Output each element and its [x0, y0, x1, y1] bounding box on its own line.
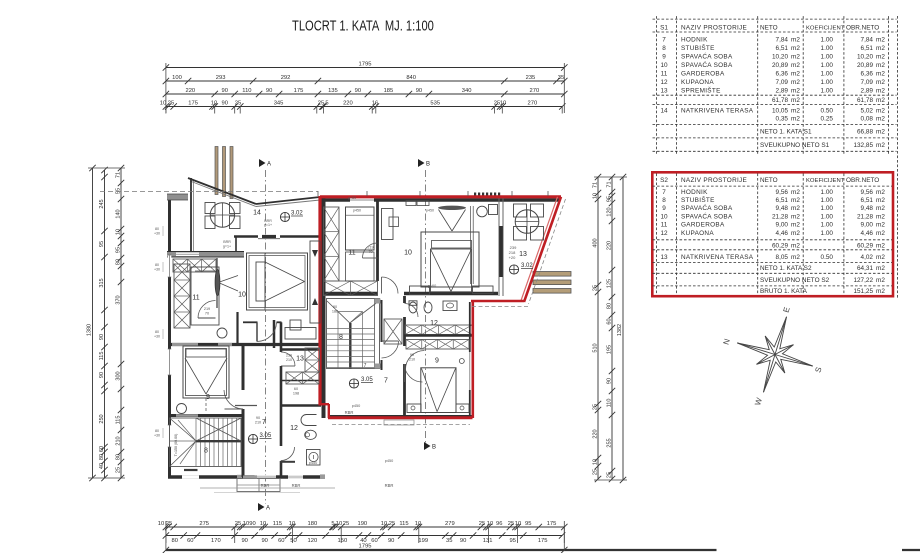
- svg-text:+30: +30: [154, 232, 160, 236]
- svg-text:110: 110: [242, 88, 251, 94]
- svg-text:25: 25: [318, 101, 324, 107]
- svg-text:m2: m2: [876, 213, 885, 220]
- svg-text:10: 10: [116, 229, 122, 235]
- svg-text:7: 7: [384, 378, 388, 385]
- svg-text:1.00: 1.00: [821, 205, 834, 212]
- svg-text:p450: p450: [353, 209, 361, 213]
- svg-text:SVEUKUPNO NETO S1: SVEUKUPNO NETO S1: [760, 142, 830, 149]
- svg-text:25: 25: [116, 467, 122, 473]
- svg-text:90: 90: [266, 88, 272, 94]
- svg-text:0.50: 0.50: [821, 254, 834, 261]
- svg-text:8: 8: [204, 448, 208, 455]
- svg-text:12: 12: [290, 425, 298, 432]
- svg-text:95: 95: [607, 196, 613, 202]
- svg-text:60: 60: [99, 446, 105, 452]
- svg-text:10: 10: [660, 213, 668, 220]
- svg-text:m2: m2: [876, 116, 885, 123]
- svg-text:SVEUKUPNO NETO S2: SVEUKUPNO NETO S2: [760, 277, 830, 284]
- svg-text:GARDEROBA: GARDEROBA: [681, 70, 725, 77]
- svg-text:90: 90: [261, 538, 267, 544]
- svg-text:OBR.NETO: OBR.NETO: [846, 25, 879, 32]
- svg-text:7: 7: [364, 363, 367, 369]
- svg-text:127,22: 127,22: [853, 277, 873, 284]
- svg-text:m2: m2: [876, 142, 885, 149]
- svg-text:120: 120: [308, 538, 318, 544]
- svg-text:250: 250: [99, 414, 105, 423]
- svg-text:61,78: 61,78: [772, 97, 788, 104]
- svg-text:m2: m2: [876, 62, 885, 69]
- svg-text:1.00: 1.00: [821, 197, 834, 204]
- svg-text:270: 270: [530, 88, 540, 94]
- svg-text:235: 235: [526, 75, 536, 81]
- svg-text:m2: m2: [791, 116, 800, 123]
- svg-text:60: 60: [187, 538, 193, 544]
- svg-text:RBR: RBR: [292, 483, 301, 488]
- svg-text:m2: m2: [791, 53, 800, 60]
- svg-text:90: 90: [249, 521, 255, 527]
- svg-text:7,84: 7,84: [861, 36, 874, 43]
- svg-text:5,02: 5,02: [861, 107, 874, 114]
- svg-text:SPAVAĆA SOBA: SPAVAĆA SOBA: [681, 51, 733, 60]
- svg-text:292: 292: [281, 75, 291, 81]
- svg-text:10: 10: [660, 62, 668, 69]
- svg-text:198: 198: [293, 392, 299, 396]
- svg-text:210: 210: [116, 436, 122, 445]
- svg-text:0.50: 0.50: [821, 107, 834, 114]
- svg-text:1.00: 1.00: [821, 88, 834, 95]
- svg-text:35: 35: [446, 538, 452, 544]
- svg-text:m2: m2: [876, 128, 885, 135]
- svg-text:T=150 (00.00): T=150 (00.00): [174, 434, 178, 457]
- svg-text:9: 9: [662, 205, 666, 212]
- svg-text:HODNIK: HODNIK: [681, 189, 708, 196]
- svg-text:SPREMIŠTE: SPREMIŠTE: [681, 86, 721, 95]
- svg-text:NATKRIVENA TERASA: NATKRIVENA TERASA: [681, 254, 754, 261]
- svg-text:10: 10: [415, 521, 421, 527]
- svg-text:12: 12: [430, 320, 438, 327]
- svg-text:7: 7: [662, 189, 666, 196]
- svg-text:KUPAONA: KUPAONA: [681, 79, 714, 86]
- svg-text:131: 131: [483, 538, 493, 544]
- svg-text:20,89: 20,89: [772, 62, 788, 69]
- svg-text:10: 10: [158, 521, 164, 527]
- svg-text:m2: m2: [876, 88, 885, 95]
- svg-text:25: 25: [508, 521, 514, 527]
- svg-text:4,46: 4,46: [861, 230, 874, 237]
- svg-text:10: 10: [211, 101, 217, 107]
- svg-text:80: 80: [155, 227, 159, 231]
- svg-text:8,05: 8,05: [776, 254, 789, 261]
- svg-text:N: N: [722, 337, 732, 345]
- svg-text:90: 90: [99, 372, 105, 378]
- svg-text:25: 25: [593, 404, 599, 410]
- svg-text:140: 140: [116, 209, 122, 218]
- svg-text:151,25: 151,25: [853, 288, 873, 295]
- svg-text:125: 125: [607, 279, 613, 288]
- svg-text:m2: m2: [791, 45, 800, 52]
- svg-text:OBR.NETO: OBR.NETO: [846, 177, 879, 184]
- svg-text:6,51: 6,51: [776, 45, 789, 52]
- svg-text:90: 90: [256, 416, 260, 420]
- svg-text:2,89: 2,89: [861, 88, 874, 95]
- svg-text:175: 175: [547, 521, 557, 527]
- svg-text:STUBIŠTE: STUBIŠTE: [681, 195, 715, 204]
- svg-text:0.25: 0.25: [821, 116, 834, 123]
- svg-text:90: 90: [607, 378, 613, 384]
- svg-text:95: 95: [99, 241, 105, 247]
- svg-text:NATKRIVENA TERASA: NATKRIVENA TERASA: [681, 107, 754, 114]
- svg-text:80: 80: [155, 263, 159, 267]
- svg-text:40: 40: [99, 463, 105, 469]
- svg-text:180: 180: [308, 521, 318, 527]
- svg-text:199: 199: [418, 538, 428, 544]
- svg-text:10: 10: [500, 101, 506, 107]
- svg-text:B: B: [432, 445, 436, 451]
- svg-text:STUBIŠTE: STUBIŠTE: [681, 43, 715, 52]
- svg-text:m2: m2: [791, 243, 800, 250]
- svg-text:255: 255: [607, 438, 613, 447]
- svg-text:6,36: 6,36: [776, 70, 789, 77]
- svg-text:90: 90: [355, 88, 361, 94]
- svg-text:25: 25: [343, 521, 349, 527]
- svg-text:m2: m2: [791, 222, 800, 229]
- svg-text:300: 300: [116, 371, 122, 380]
- svg-text:HODNIK: HODNIK: [681, 36, 708, 43]
- svg-text:220: 220: [343, 101, 353, 107]
- svg-text:m2: m2: [876, 36, 885, 43]
- svg-text:270: 270: [528, 101, 538, 107]
- svg-text:10: 10: [336, 521, 342, 527]
- svg-text:7,84: 7,84: [776, 36, 789, 43]
- svg-text:90: 90: [241, 538, 247, 544]
- svg-text:NETO: NETO: [760, 177, 778, 184]
- svg-text:175: 175: [188, 101, 198, 107]
- svg-text:190: 190: [357, 521, 367, 527]
- svg-text:7: 7: [662, 36, 666, 43]
- svg-text:135: 135: [328, 88, 338, 94]
- svg-text:1.00: 1.00: [821, 36, 834, 43]
- svg-text:188: 188: [332, 310, 338, 314]
- svg-text:14: 14: [253, 210, 261, 217]
- svg-text:25: 25: [389, 521, 395, 527]
- svg-text:210: 210: [286, 358, 292, 362]
- svg-text:90: 90: [388, 538, 394, 544]
- svg-text:p450: p450: [426, 209, 434, 213]
- svg-text:10,05: 10,05: [772, 107, 788, 114]
- svg-text:3.05: 3.05: [260, 433, 272, 439]
- svg-text:p450: p450: [309, 461, 317, 465]
- svg-text:1.00: 1.00: [821, 53, 834, 60]
- svg-text:7,09: 7,09: [861, 79, 874, 86]
- svg-text:25: 25: [235, 101, 241, 107]
- svg-text:RBR: RBR: [385, 483, 394, 488]
- svg-text:KUPAONA: KUPAONA: [681, 230, 714, 237]
- svg-text:71: 71: [593, 182, 599, 188]
- svg-text:S2: S2: [660, 177, 668, 184]
- svg-text:2,89: 2,89: [776, 88, 789, 95]
- svg-text:NAZIV PROSTORIJE: NAZIV PROSTORIJE: [681, 25, 747, 32]
- svg-text:10: 10: [160, 101, 166, 107]
- svg-text:+30: +30: [154, 335, 160, 339]
- svg-text:11: 11: [661, 70, 668, 77]
- svg-text:m2: m2: [791, 97, 800, 104]
- svg-text:3.02: 3.02: [521, 263, 533, 269]
- svg-text:13: 13: [519, 251, 527, 258]
- svg-text:10: 10: [487, 521, 493, 527]
- svg-text:80: 80: [172, 538, 178, 544]
- svg-text:m2: m2: [791, 197, 800, 204]
- svg-text:90: 90: [221, 88, 227, 94]
- svg-text:219: 219: [204, 307, 210, 311]
- svg-text:7: 7: [262, 419, 266, 426]
- svg-text:370: 370: [116, 295, 122, 304]
- svg-text:10: 10: [381, 521, 387, 527]
- svg-text:219: 219: [368, 246, 374, 250]
- svg-text:60: 60: [371, 538, 377, 544]
- svg-text:8: 8: [662, 45, 666, 52]
- svg-text:80: 80: [155, 330, 159, 334]
- svg-text:g=1+: g=1+: [264, 223, 272, 227]
- svg-text:150: 150: [338, 538, 348, 544]
- svg-text:1795: 1795: [359, 544, 372, 550]
- svg-text:60: 60: [294, 387, 298, 391]
- svg-text:175: 175: [294, 88, 304, 94]
- svg-text:S: S: [813, 366, 823, 374]
- svg-text:m2: m2: [791, 254, 800, 261]
- svg-text:1795: 1795: [359, 62, 372, 68]
- svg-text:340: 340: [462, 88, 472, 94]
- svg-text:50: 50: [290, 538, 296, 544]
- svg-text:W: W: [753, 396, 764, 406]
- svg-text:GARDEROBA: GARDEROBA: [681, 222, 725, 229]
- svg-text:80: 80: [607, 303, 613, 309]
- svg-text:293: 293: [216, 75, 226, 81]
- svg-text:3.05: 3.05: [361, 377, 373, 383]
- svg-text:+20: +20: [509, 255, 517, 260]
- svg-text:m2: m2: [876, 197, 885, 204]
- svg-text:25: 25: [593, 285, 599, 291]
- svg-text:B: B: [426, 162, 430, 168]
- svg-text:BRUTO 1. KATA: BRUTO 1. KATA: [760, 288, 808, 295]
- svg-text:110: 110: [607, 399, 613, 408]
- svg-text:220: 220: [185, 88, 195, 94]
- svg-text:SPAVAĆA SOBA: SPAVAĆA SOBA: [681, 60, 733, 69]
- svg-text:9,00: 9,00: [776, 222, 789, 229]
- svg-text:1.00: 1.00: [821, 45, 834, 52]
- svg-text:535: 535: [430, 101, 440, 107]
- svg-text:E: E: [782, 306, 792, 314]
- svg-text:m2: m2: [876, 288, 885, 295]
- svg-text:25: 25: [235, 521, 241, 527]
- svg-text:10: 10: [404, 250, 412, 257]
- svg-text:m2: m2: [791, 36, 800, 43]
- svg-text:90: 90: [416, 88, 422, 94]
- svg-text:170: 170: [211, 538, 221, 544]
- svg-text:60,29: 60,29: [772, 243, 788, 250]
- svg-text:g=60: g=60: [348, 196, 357, 200]
- svg-text:13: 13: [660, 254, 668, 261]
- svg-text:m2: m2: [791, 88, 800, 95]
- svg-text:25: 25: [607, 472, 613, 478]
- svg-text:+30: +30: [154, 268, 160, 272]
- svg-text:239: 239: [286, 354, 292, 358]
- svg-text:m2: m2: [876, 265, 885, 272]
- svg-text:m2: m2: [791, 213, 800, 220]
- svg-text:95: 95: [509, 538, 515, 544]
- svg-text:115: 115: [399, 521, 408, 527]
- svg-text:25: 25: [593, 469, 599, 475]
- svg-text:10: 10: [238, 292, 246, 299]
- svg-text:16: 16: [372, 101, 378, 107]
- svg-text:6,51: 6,51: [861, 197, 874, 204]
- svg-text:220: 220: [607, 241, 613, 250]
- svg-text:m2: m2: [876, 97, 885, 104]
- svg-text:11: 11: [661, 222, 668, 229]
- svg-text:60,29: 60,29: [857, 243, 873, 250]
- svg-text:90: 90: [99, 334, 105, 340]
- svg-text:1.00: 1.00: [821, 79, 834, 86]
- svg-text:NETO 1. KATA S2: NETO 1. KATA S2: [760, 265, 812, 272]
- svg-text:5: 5: [331, 521, 334, 527]
- svg-text:m2: m2: [876, 45, 885, 52]
- svg-text:m2: m2: [876, 222, 885, 229]
- svg-text:m2: m2: [876, 53, 885, 60]
- svg-text:9,56: 9,56: [861, 189, 874, 196]
- svg-text:RBR: RBR: [345, 410, 354, 415]
- svg-text:115: 115: [116, 416, 122, 425]
- svg-text:11: 11: [348, 250, 355, 257]
- svg-text:66,88: 66,88: [857, 128, 873, 135]
- svg-text:A: A: [267, 162, 271, 168]
- svg-text:6,51: 6,51: [776, 197, 789, 204]
- svg-text:9,00: 9,00: [861, 222, 874, 229]
- svg-text:9: 9: [662, 53, 666, 60]
- svg-text:9: 9: [435, 358, 439, 365]
- svg-text:SPAVAĆA SOBA: SPAVAĆA SOBA: [681, 211, 733, 220]
- svg-text:m2: m2: [791, 205, 800, 212]
- svg-text:90: 90: [460, 538, 466, 544]
- svg-text:10: 10: [243, 521, 249, 527]
- svg-text:185: 185: [384, 88, 394, 94]
- svg-text:70: 70: [205, 312, 209, 316]
- svg-text:10,20: 10,20: [772, 53, 788, 60]
- svg-text:12: 12: [660, 230, 668, 237]
- svg-text:1.00: 1.00: [821, 70, 834, 77]
- svg-text:64,31: 64,31: [857, 265, 873, 272]
- svg-text:m2: m2: [876, 107, 885, 114]
- svg-text:m2: m2: [876, 70, 885, 77]
- svg-text:245: 245: [99, 199, 105, 208]
- svg-text:m2: m2: [876, 277, 885, 284]
- svg-text:m2: m2: [876, 79, 885, 86]
- svg-text:1380: 1380: [87, 324, 93, 336]
- svg-text:m2: m2: [876, 254, 885, 261]
- svg-text:210: 210: [409, 358, 415, 362]
- svg-text:25: 25: [168, 101, 174, 107]
- svg-text:10,20: 10,20: [857, 53, 873, 60]
- svg-text:9,48: 9,48: [861, 205, 874, 212]
- svg-text:m2: m2: [791, 189, 800, 196]
- svg-text:A: A: [266, 506, 270, 512]
- svg-text:TLOCRT 1. KATA MJ. 1:100: TLOCRT 1. KATA MJ. 1:100: [292, 17, 434, 34]
- svg-text:1382: 1382: [617, 324, 623, 336]
- svg-text:6,51: 6,51: [861, 45, 874, 52]
- svg-text:1.00: 1.00: [821, 222, 834, 229]
- svg-text:8: 8: [662, 197, 666, 204]
- svg-text:0,08: 0,08: [861, 116, 874, 123]
- svg-text:21,28: 21,28: [772, 213, 788, 220]
- svg-text:9,56: 9,56: [776, 189, 789, 196]
- svg-text:KOEFICIJENT: KOEFICIJENT: [806, 26, 845, 32]
- svg-text:20,89: 20,89: [857, 62, 873, 69]
- svg-text:1.00: 1.00: [821, 189, 834, 196]
- svg-text:115: 115: [273, 521, 282, 527]
- svg-text:1.00: 1.00: [821, 213, 834, 220]
- svg-text:14: 14: [660, 107, 668, 114]
- svg-text:g=60: g=60: [428, 284, 437, 288]
- svg-text:510: 510: [593, 343, 599, 352]
- svg-text:11: 11: [192, 295, 199, 302]
- svg-text:7,09: 7,09: [776, 79, 789, 86]
- svg-text:21,28: 21,28: [857, 213, 873, 220]
- svg-text:9,48: 9,48: [776, 205, 789, 212]
- svg-text:80: 80: [116, 454, 122, 460]
- svg-text:NAZIV PROSTORIJE: NAZIV PROSTORIJE: [681, 177, 747, 184]
- svg-text:115: 115: [99, 352, 105, 361]
- svg-text:5: 5: [325, 101, 328, 107]
- svg-text:95: 95: [116, 247, 122, 253]
- svg-text:71: 71: [607, 181, 613, 187]
- svg-text:71: 71: [116, 172, 122, 178]
- svg-text:10: 10: [289, 521, 295, 527]
- svg-text:m2: m2: [876, 205, 885, 212]
- svg-text:4,02: 4,02: [861, 254, 874, 261]
- svg-text:p450: p450: [352, 404, 360, 408]
- svg-text:220: 220: [593, 429, 599, 438]
- svg-text:80: 80: [333, 305, 337, 309]
- svg-text:175: 175: [538, 538, 548, 544]
- svg-text:m2: m2: [791, 79, 800, 86]
- svg-text:12: 12: [660, 79, 668, 86]
- svg-text:0,35: 0,35: [776, 116, 789, 123]
- svg-text:4,46: 4,46: [776, 230, 789, 237]
- svg-text:100: 100: [172, 75, 182, 81]
- svg-text:m2: m2: [876, 189, 885, 196]
- svg-text:NETO 1. KATA S1: NETO 1. KATA S1: [760, 128, 812, 135]
- svg-text:90: 90: [221, 101, 227, 107]
- svg-text:345: 345: [274, 101, 284, 107]
- svg-text:315: 315: [99, 278, 105, 287]
- svg-text:m2: m2: [876, 230, 885, 237]
- svg-text:KOEFICIJENT: KOEFICIJENT: [806, 178, 845, 184]
- svg-text:13: 13: [296, 356, 304, 363]
- svg-text:SPAVAĆA SOBA: SPAVAĆA SOBA: [681, 203, 733, 212]
- svg-text:+30: +30: [154, 434, 160, 438]
- svg-text:90: 90: [410, 353, 414, 357]
- svg-text:g=1+: g=1+: [223, 245, 231, 249]
- svg-text:95: 95: [525, 521, 531, 527]
- svg-text:9: 9: [206, 394, 210, 401]
- svg-text:35: 35: [558, 75, 564, 81]
- svg-text:6,36: 6,36: [861, 70, 874, 77]
- svg-text:BRR: BRR: [223, 240, 231, 244]
- svg-text:NETO: NETO: [760, 25, 778, 32]
- svg-text:279: 279: [445, 521, 455, 527]
- svg-text:m2: m2: [791, 230, 800, 237]
- svg-text:S1: S1: [660, 25, 668, 32]
- svg-text:m2: m2: [876, 243, 885, 250]
- svg-text:61,78: 61,78: [857, 97, 873, 104]
